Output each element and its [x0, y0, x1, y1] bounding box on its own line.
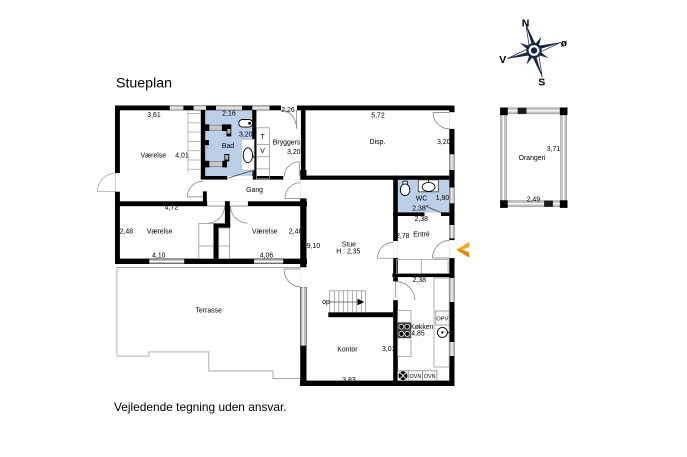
- svg-text:3,01: 3,01: [382, 346, 396, 353]
- svg-text:OPV: OPV: [436, 316, 448, 322]
- svg-text:2,48: 2,48: [120, 228, 134, 235]
- svg-text:V: V: [499, 54, 506, 66]
- svg-text:3,20: 3,20: [437, 139, 451, 146]
- svg-text:3,61: 3,61: [147, 112, 161, 119]
- svg-text:4,72: 4,72: [165, 205, 179, 212]
- svg-text:Terrasse: Terrasse: [195, 308, 222, 315]
- svg-text:op: op: [322, 299, 330, 306]
- svg-text:Kontor: Kontor: [337, 346, 358, 353]
- svg-text:OVN: OVN: [424, 374, 436, 380]
- svg-text:N: N: [522, 18, 530, 30]
- svg-text:5,72: 5,72: [371, 112, 385, 119]
- svg-text:Vejledende tegning uden ansvar: Vejledende tegning uden ansvar.: [114, 400, 287, 414]
- svg-text:4,85: 4,85: [411, 331, 425, 338]
- svg-text:Værelse: Værelse: [252, 229, 278, 236]
- svg-text:Værelse: Værelse: [140, 152, 166, 159]
- svg-text:2,38: 2,38: [413, 277, 427, 284]
- svg-text:3,71: 3,71: [547, 146, 561, 153]
- svg-text:ø: ø: [561, 37, 568, 49]
- svg-text:2,78: 2,78: [396, 233, 410, 240]
- svg-text:Orangeri: Orangeri: [519, 155, 546, 162]
- svg-text:4,10: 4,10: [152, 252, 166, 259]
- svg-text:2,26: 2,26: [281, 107, 295, 114]
- svg-text:3,83: 3,83: [342, 377, 356, 384]
- svg-text:OVN: OVN: [410, 374, 422, 380]
- svg-text:WC: WC: [416, 195, 428, 202]
- svg-text:4,01: 4,01: [175, 152, 189, 159]
- svg-text:3,20: 3,20: [239, 132, 253, 139]
- svg-text:Værelse: Værelse: [147, 229, 173, 236]
- svg-text:V: V: [260, 148, 265, 155]
- svg-text:Stueplan: Stueplan: [116, 76, 172, 92]
- svg-text:2,38: 2,38: [412, 206, 426, 213]
- svg-text:Bryggers: Bryggers: [273, 139, 301, 146]
- svg-text:2,38: 2,38: [415, 216, 429, 223]
- svg-text:2,48: 2,48: [289, 228, 303, 235]
- svg-text:2,16: 2,16: [222, 111, 236, 118]
- svg-text:1,90: 1,90: [436, 195, 450, 202]
- svg-text:Gang: Gang: [246, 187, 263, 194]
- svg-text:H : 2,35: H : 2,35: [336, 248, 360, 255]
- svg-text:Bad: Bad: [222, 143, 234, 150]
- svg-text:2,49: 2,49: [527, 196, 541, 203]
- svg-text:Disp.: Disp.: [370, 139, 386, 146]
- svg-text:3,20: 3,20: [287, 149, 301, 156]
- svg-text:Entré: Entré: [413, 232, 430, 239]
- svg-text:4,06: 4,06: [260, 252, 274, 259]
- svg-text:S: S: [538, 77, 545, 89]
- svg-text:9,10: 9,10: [307, 243, 321, 250]
